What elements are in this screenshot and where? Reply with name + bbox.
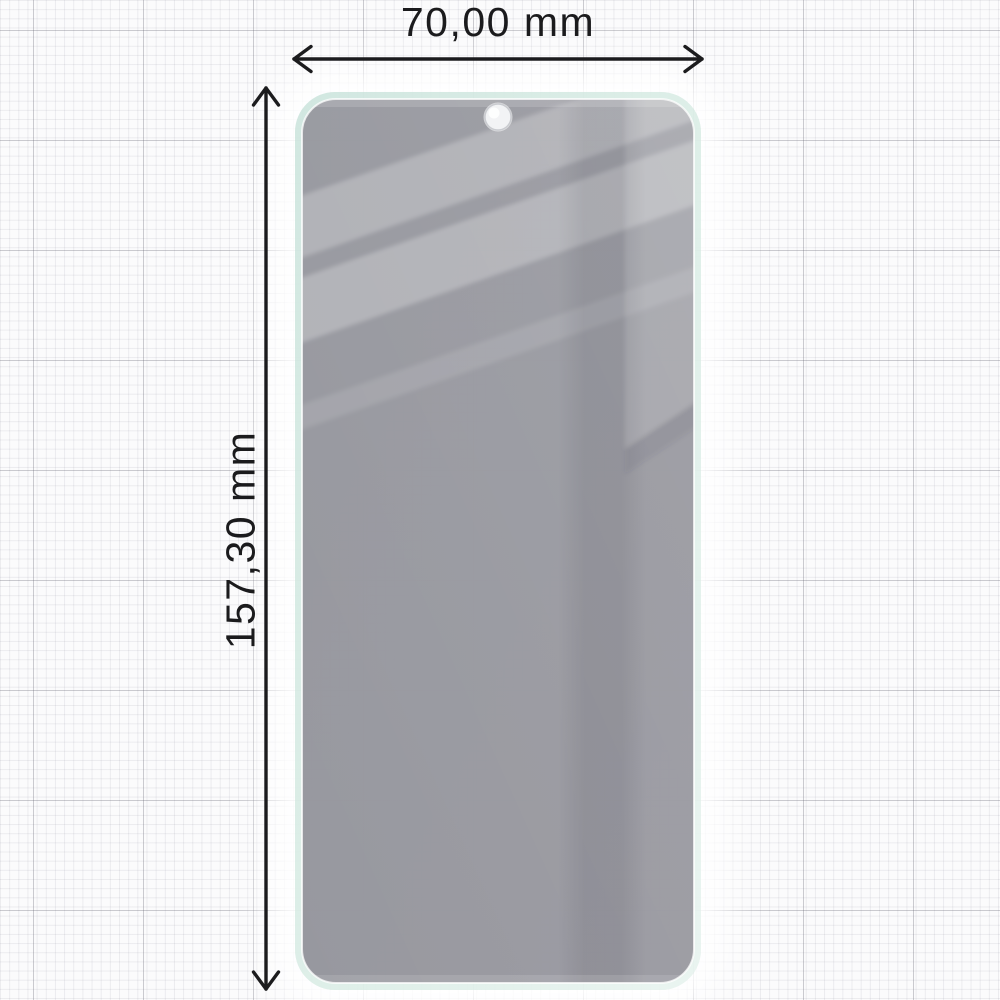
glass-sheen bbox=[295, 92, 701, 990]
camera-hole-icon bbox=[484, 103, 513, 132]
screen-protector-graphic bbox=[295, 92, 701, 990]
height-dimension-label: 157,30 mm bbox=[218, 431, 265, 650]
graph-paper-background: 70,00 mm 157,30 mm bbox=[0, 0, 1000, 1000]
screen-protector bbox=[295, 92, 701, 990]
width-dimension-label: 70,00 mm bbox=[295, 0, 701, 46]
width-dimension-arrow bbox=[294, 47, 702, 72]
